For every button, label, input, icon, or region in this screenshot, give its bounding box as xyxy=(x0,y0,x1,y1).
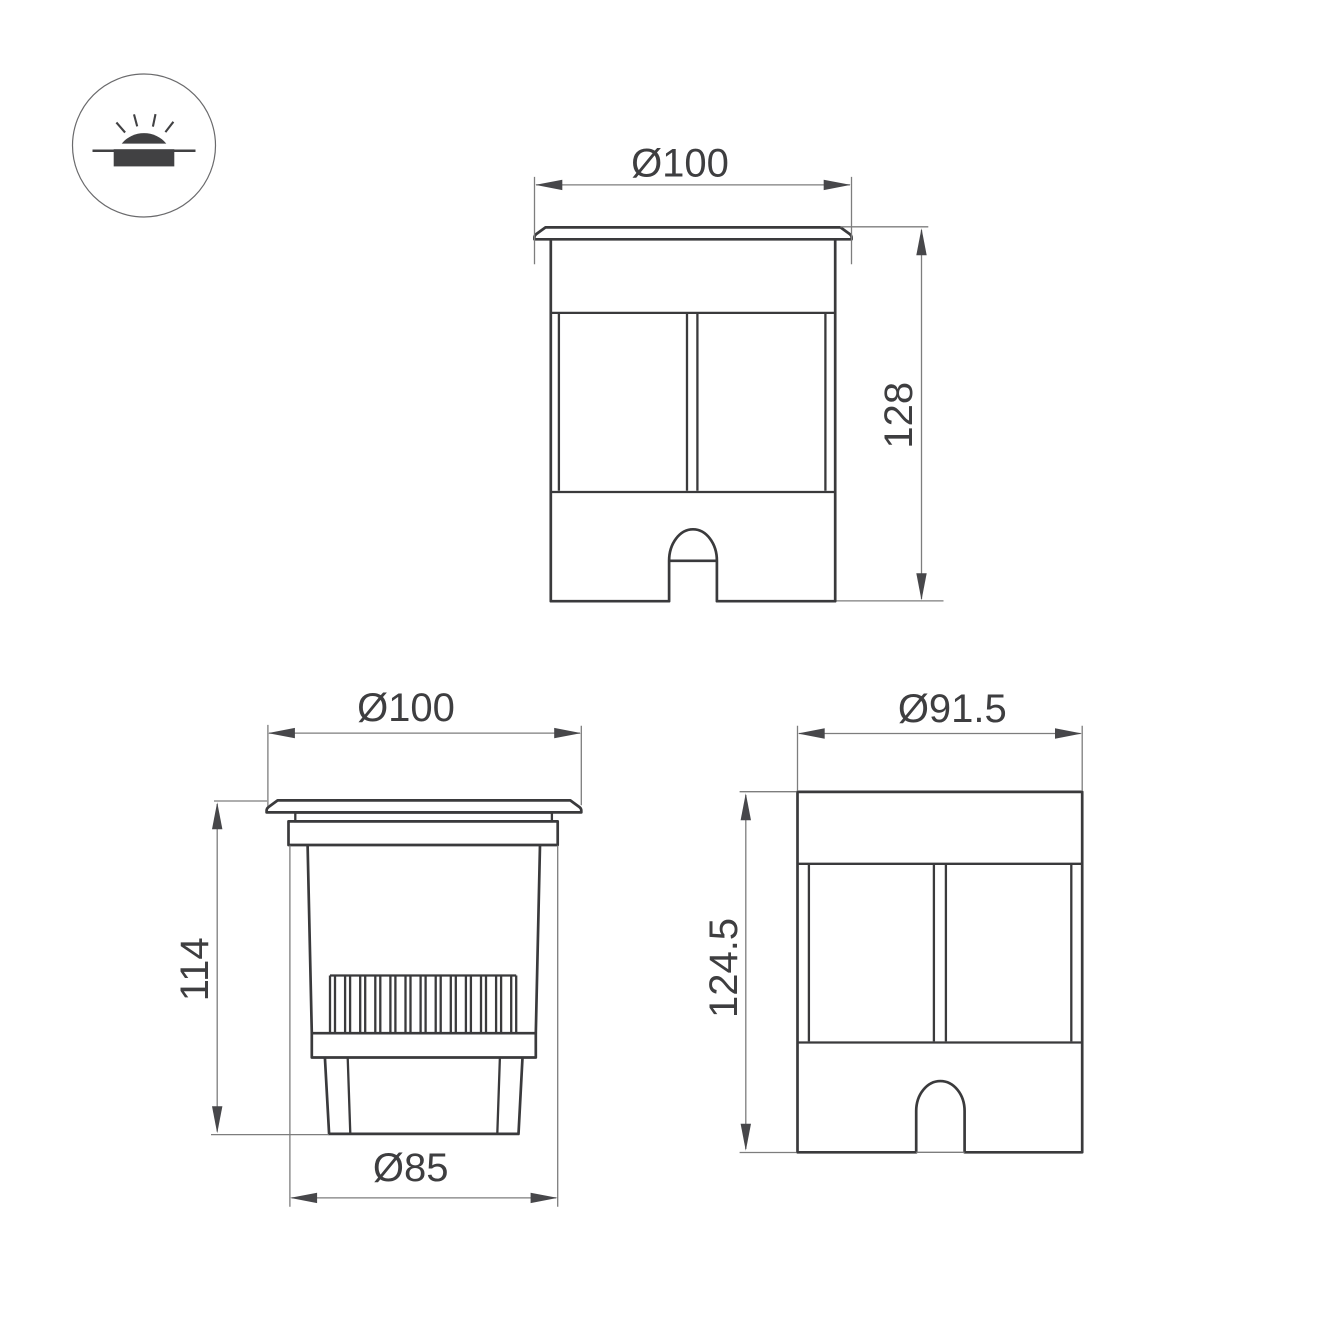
svg-text:Ø100: Ø100 xyxy=(631,142,729,186)
svg-text:Ø91.5: Ø91.5 xyxy=(898,687,1007,731)
svg-text:128: 128 xyxy=(877,382,921,449)
svg-text:114: 114 xyxy=(173,937,217,1001)
svg-text:124.5: 124.5 xyxy=(702,918,746,1018)
svg-text:Ø85: Ø85 xyxy=(373,1146,449,1190)
svg-text:Ø100: Ø100 xyxy=(357,686,455,730)
